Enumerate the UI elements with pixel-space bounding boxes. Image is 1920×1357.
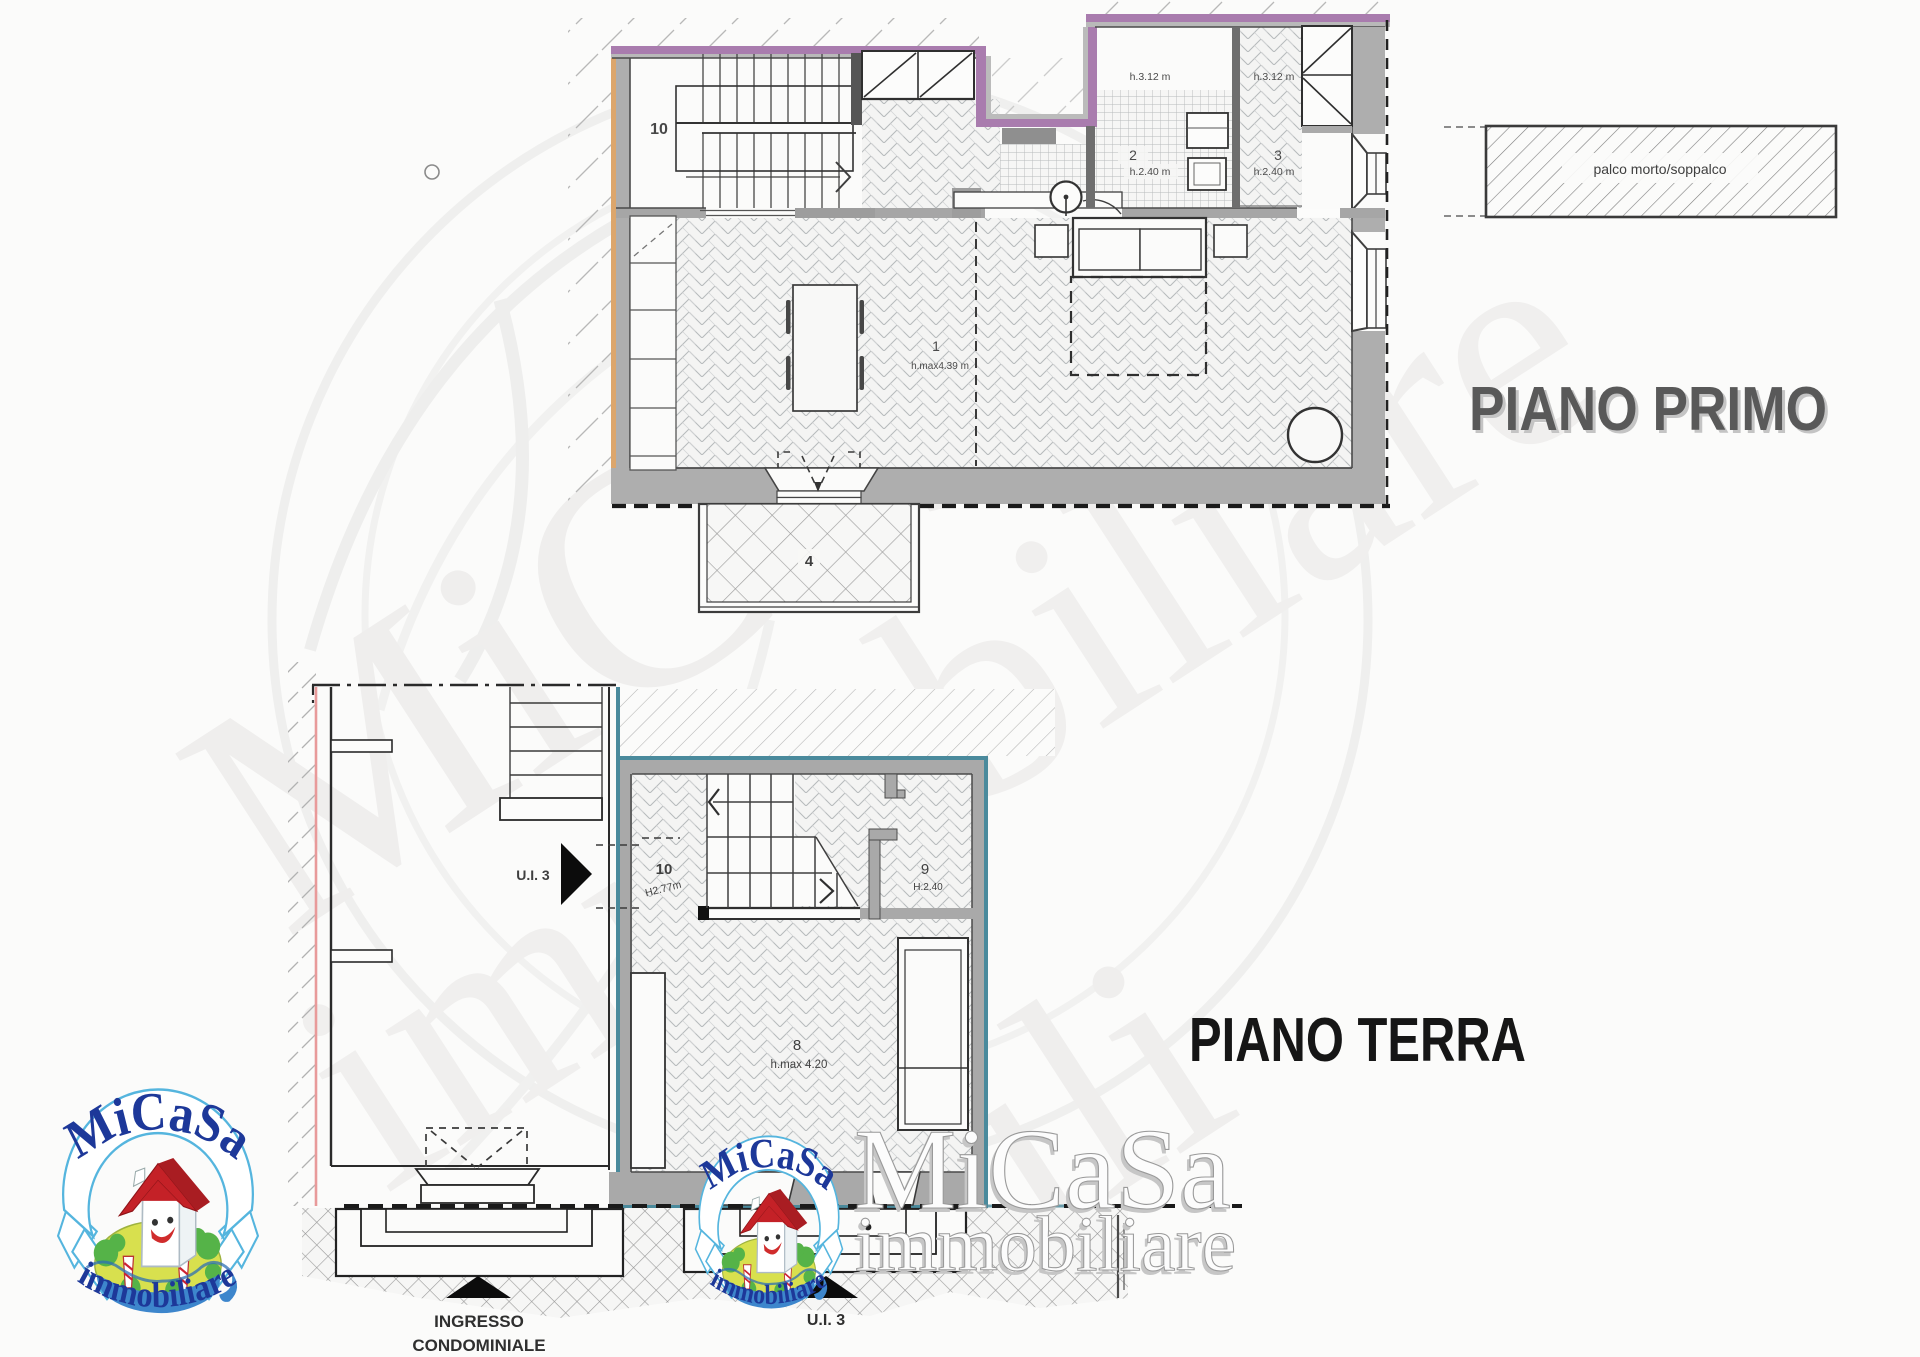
svg-text:1: 1 <box>932 338 940 354</box>
svg-text:immobiliare: immobiliare <box>855 1200 1236 1287</box>
svg-text:3: 3 <box>1274 147 1282 163</box>
svg-text:2: 2 <box>1129 147 1137 163</box>
svg-text:H.2.40: H.2.40 <box>913 882 943 893</box>
svg-text:h.3.12 m: h.3.12 m <box>1254 71 1295 83</box>
svg-text:h.max 4.20: h.max 4.20 <box>771 1059 828 1071</box>
svg-text:palco morto/soppalco: palco morto/soppalco <box>1593 161 1726 177</box>
svg-text:h.max4.39 m: h.max4.39 m <box>911 361 969 372</box>
svg-text:10: 10 <box>650 121 668 138</box>
svg-text:PIANO PRIMO: PIANO PRIMO <box>1469 375 1827 444</box>
svg-text:U.I. 3: U.I. 3 <box>807 1312 845 1329</box>
svg-text:CONDOMINIALE: CONDOMINIALE <box>412 1336 545 1355</box>
svg-text:h.3.12 m: h.3.12 m <box>1130 71 1171 83</box>
svg-text:h.2.40 m: h.2.40 m <box>1254 166 1295 178</box>
svg-text:h.2.40 m: h.2.40 m <box>1130 166 1171 178</box>
svg-text:9: 9 <box>921 861 929 878</box>
svg-text:10: 10 <box>656 861 673 878</box>
svg-text:U.I. 3: U.I. 3 <box>516 867 550 883</box>
svg-text:8: 8 <box>793 1037 801 1054</box>
svg-text:PIANO TERRA: PIANO TERRA <box>1189 1006 1526 1075</box>
svg-text:4: 4 <box>805 553 814 570</box>
svg-text:INGRESSO: INGRESSO <box>434 1312 524 1331</box>
